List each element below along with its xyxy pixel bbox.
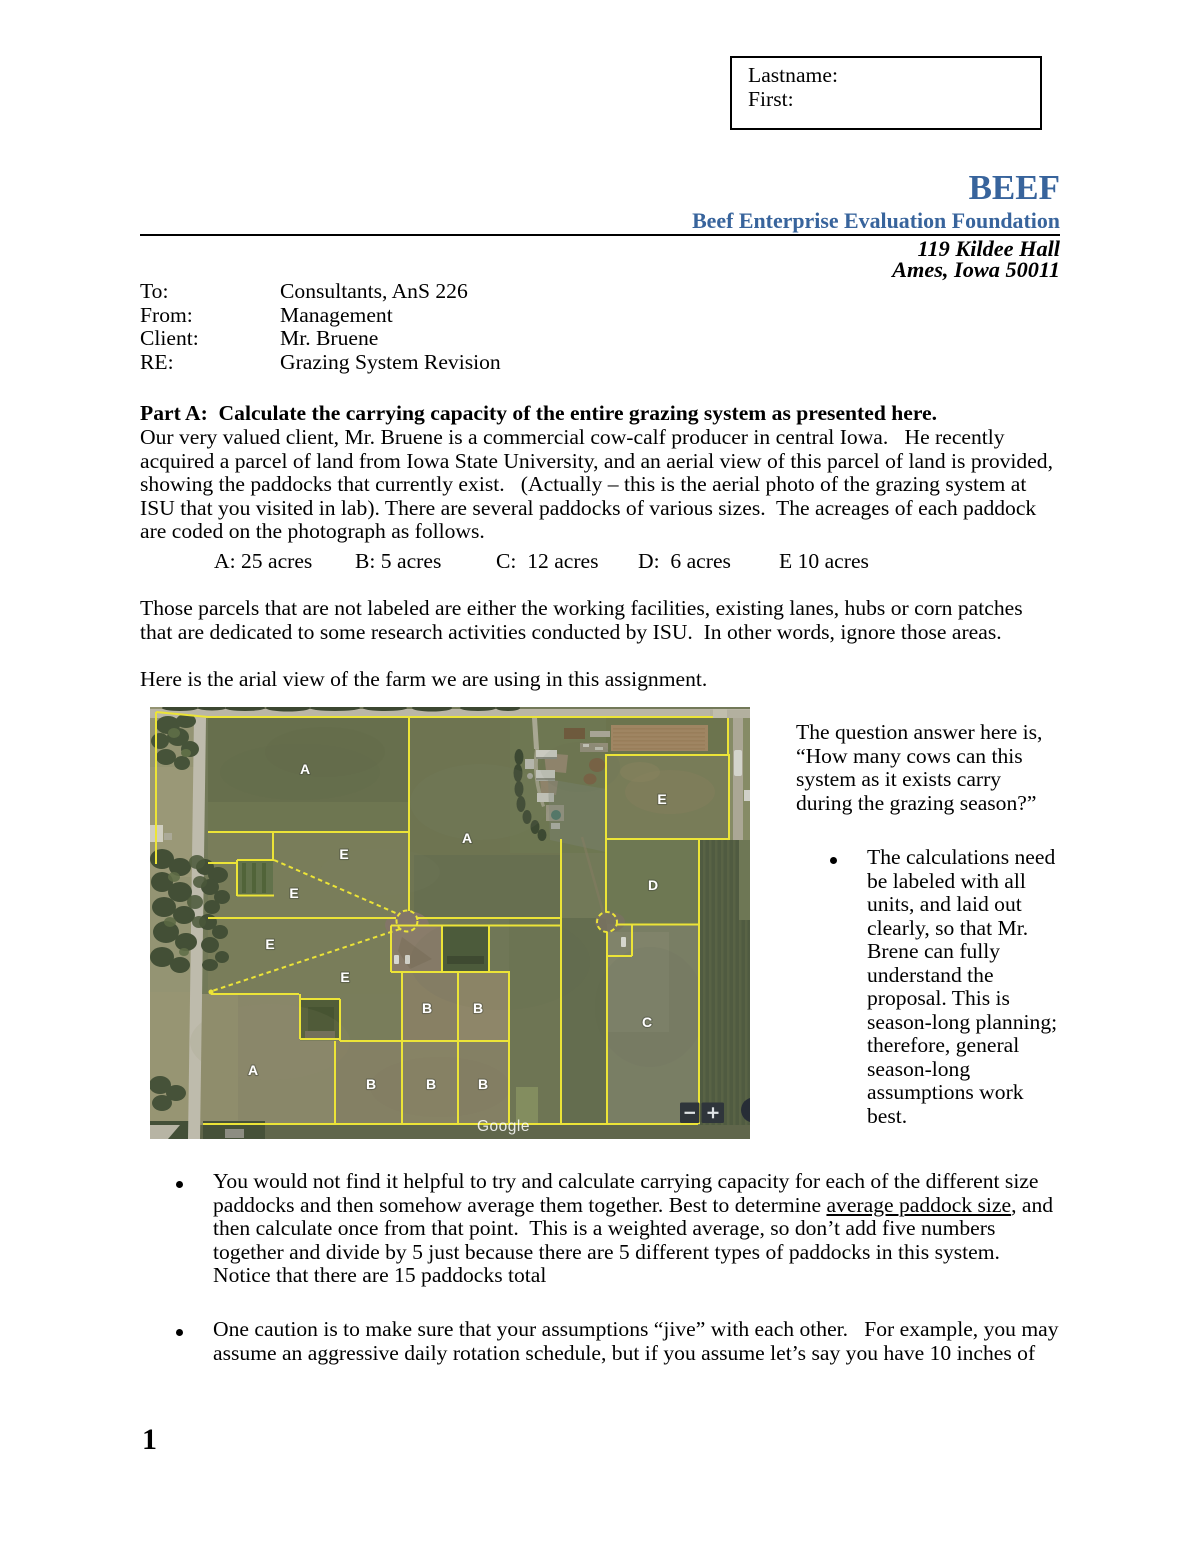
svg-text:D: D: [648, 877, 658, 893]
svg-text:A: A: [248, 1062, 258, 1078]
svg-text:B: B: [366, 1076, 376, 1092]
svg-text:E: E: [340, 969, 349, 985]
svg-text:B: B: [422, 1000, 432, 1016]
svg-text:C: C: [642, 1014, 652, 1030]
svg-text:B: B: [478, 1076, 488, 1092]
svg-text:A: A: [300, 761, 310, 777]
svg-text:Google: Google: [477, 1118, 530, 1135]
svg-text:B: B: [426, 1076, 436, 1092]
svg-text:E: E: [657, 791, 666, 807]
svg-text:E: E: [339, 846, 348, 862]
svg-text:E: E: [289, 885, 298, 901]
svg-text:B: B: [473, 1000, 483, 1016]
svg-text:A: A: [462, 830, 472, 846]
svg-text:E: E: [265, 936, 274, 952]
